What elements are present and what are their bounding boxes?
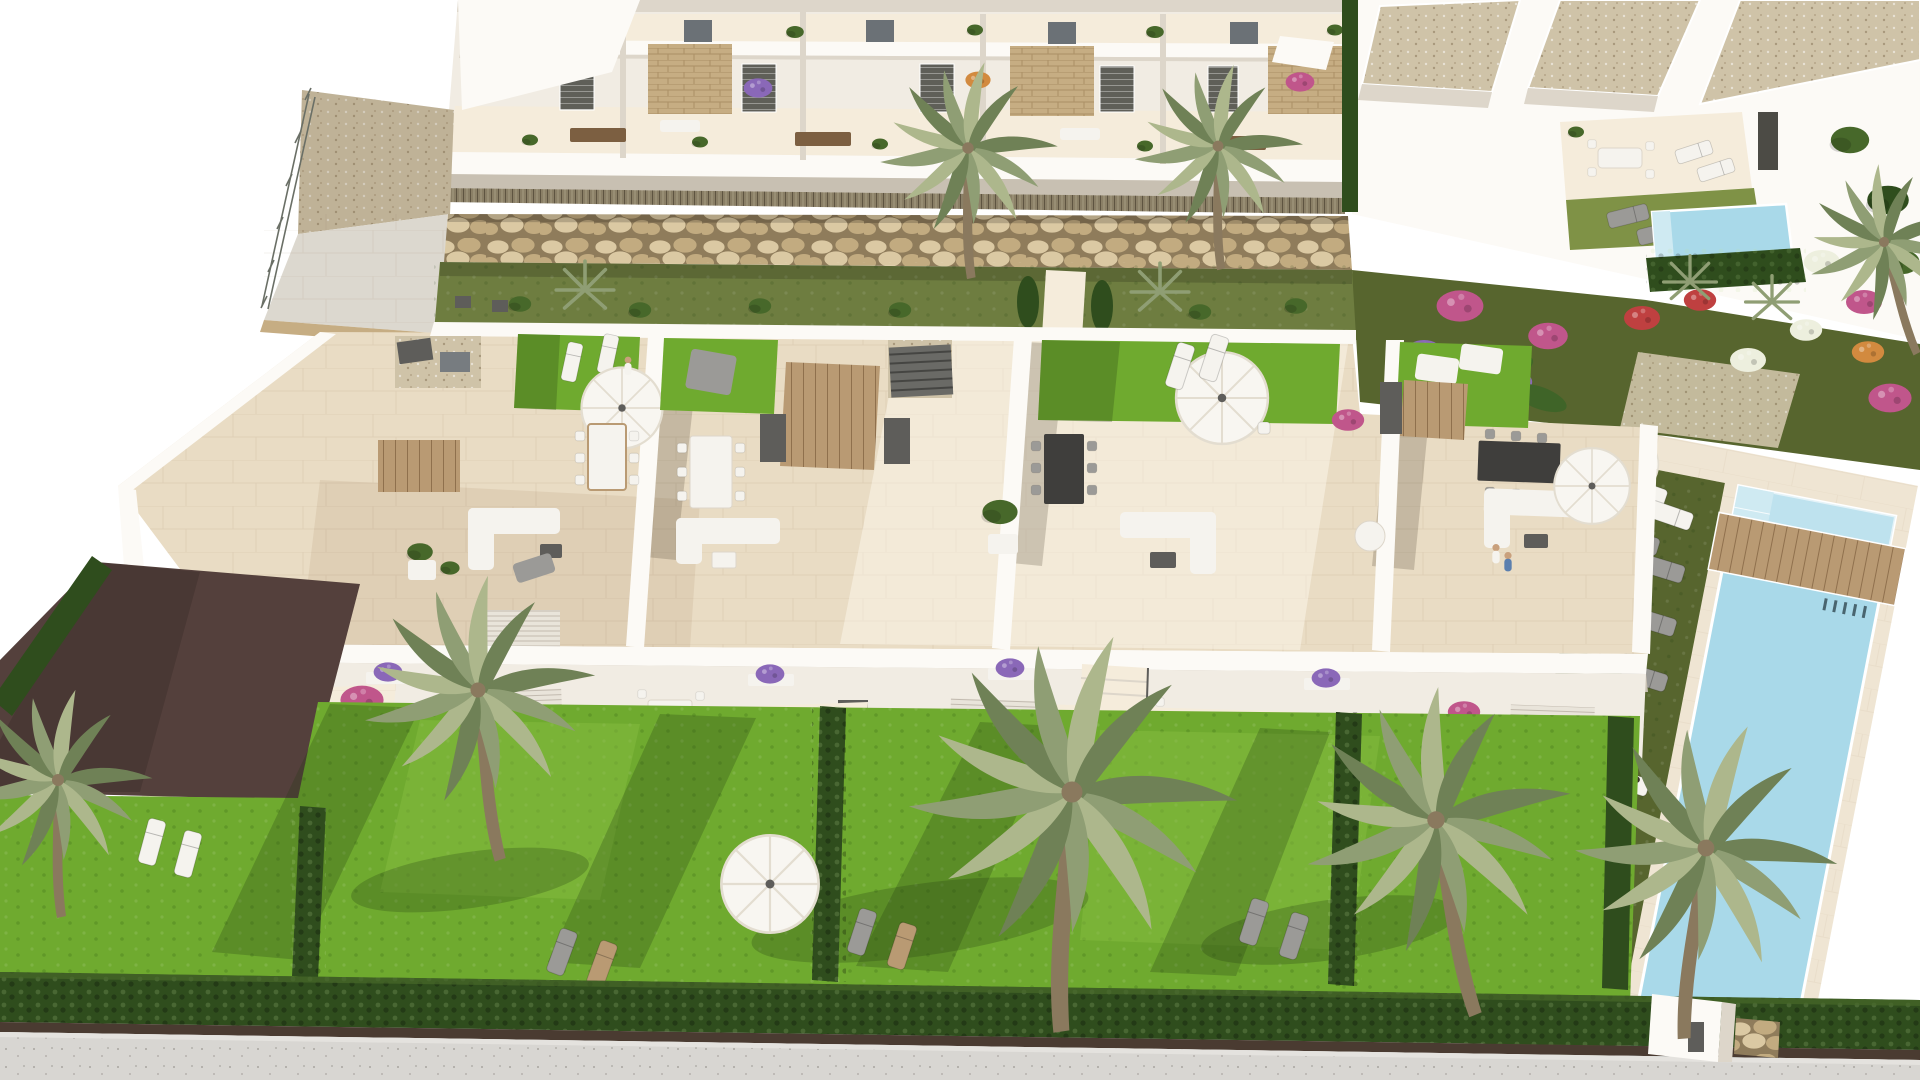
dining-set-black [1031,434,1097,504]
planter [455,296,471,308]
screen-block [884,418,910,464]
person [1504,552,1511,571]
screen-block [1380,382,1402,434]
stair-bulkhead [1400,380,1468,440]
villa-patio [1560,112,1752,200]
planter-flowers [1332,409,1364,431]
parasol [1554,448,1630,524]
chair [1258,422,1270,434]
person [625,357,632,375]
separation-hedge [1342,0,1358,212]
rooftop-terraces [118,322,1658,692]
stair-bulkhead [780,362,880,470]
hedge-texture [1646,248,1806,292]
screen-block [760,414,786,462]
person [1492,544,1499,563]
cypress-bush [1091,280,1113,332]
dining-set [575,424,639,490]
pergola [889,344,954,397]
planter [492,300,508,312]
scene [0,0,1920,1080]
stone-block [1734,1018,1780,1058]
daybed [685,348,737,395]
round-daybed [1355,521,1385,551]
cypress-bush [1017,276,1039,328]
wood-deck [378,440,460,492]
parasol [721,835,818,932]
render-canvas [0,0,1920,1080]
